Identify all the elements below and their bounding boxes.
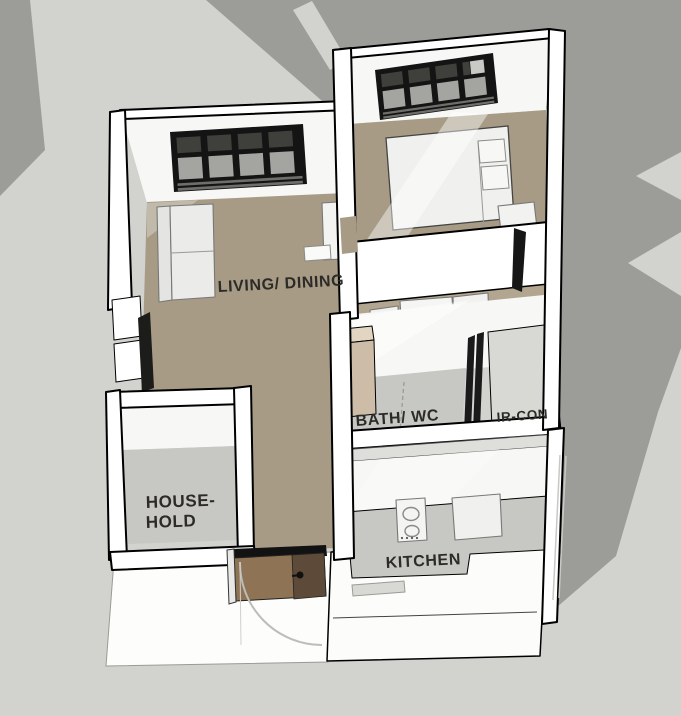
household-label-line1: HOUSE-	[145, 491, 215, 512]
household-wall-face	[119, 402, 238, 450]
wall-bath-west	[330, 312, 354, 560]
doorway-opening	[340, 216, 358, 254]
floor-plan-viewport[interactable]: LIVING/ DINING HOUSE- HOLD BATH/ WC IR-C…	[0, 0, 681, 716]
window-pane	[239, 153, 264, 176]
side-table	[304, 245, 331, 261]
window-pane	[464, 76, 487, 97]
sink	[452, 494, 502, 540]
door-jamb	[227, 549, 236, 604]
window-pane	[238, 133, 263, 150]
window-pane	[207, 134, 232, 151]
wall-household-east	[234, 386, 254, 556]
window-pane	[176, 136, 201, 153]
living-window	[170, 124, 307, 192]
knob-dot	[411, 537, 413, 539]
household-label-line2: HOLD	[145, 511, 196, 532]
window-pane	[178, 157, 203, 180]
floor-plan-render: LIVING/ DINING HOUSE- HOLD BATH/ WC IR-C…	[0, 0, 681, 716]
bed-pillow	[481, 165, 509, 190]
wall-household-north	[112, 388, 244, 408]
window-pane	[268, 131, 293, 148]
sofa-back	[157, 206, 172, 302]
knob-dot	[406, 537, 408, 539]
wall-pillar	[114, 340, 144, 382]
window-pane	[383, 88, 406, 109]
window-pane	[437, 80, 460, 101]
door-handle-stem	[292, 575, 300, 576]
window-pane	[470, 59, 485, 74]
bed-pillow	[478, 139, 506, 163]
knob-dot	[416, 537, 418, 539]
window-pane	[410, 84, 433, 105]
window-pane	[270, 151, 295, 174]
wall-pillar	[112, 296, 142, 340]
window-pane	[208, 155, 233, 178]
knob-dot	[401, 537, 403, 539]
window-pane	[462, 61, 470, 75]
